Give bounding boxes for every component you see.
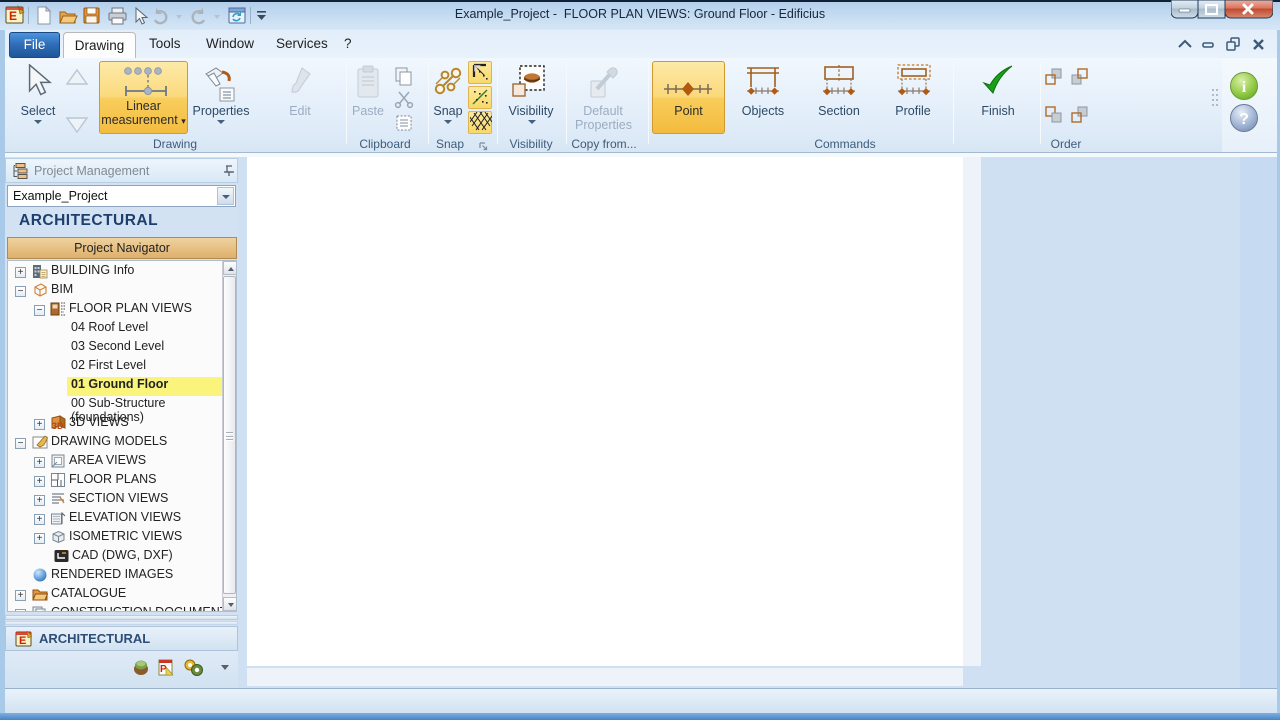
svg-text:3D: 3D — [52, 421, 64, 431]
svg-text:E: E — [9, 9, 17, 23]
svg-text:E: E — [19, 635, 26, 647]
svg-text:?: ? — [1239, 111, 1249, 128]
svg-text:i: i — [1242, 79, 1247, 96]
